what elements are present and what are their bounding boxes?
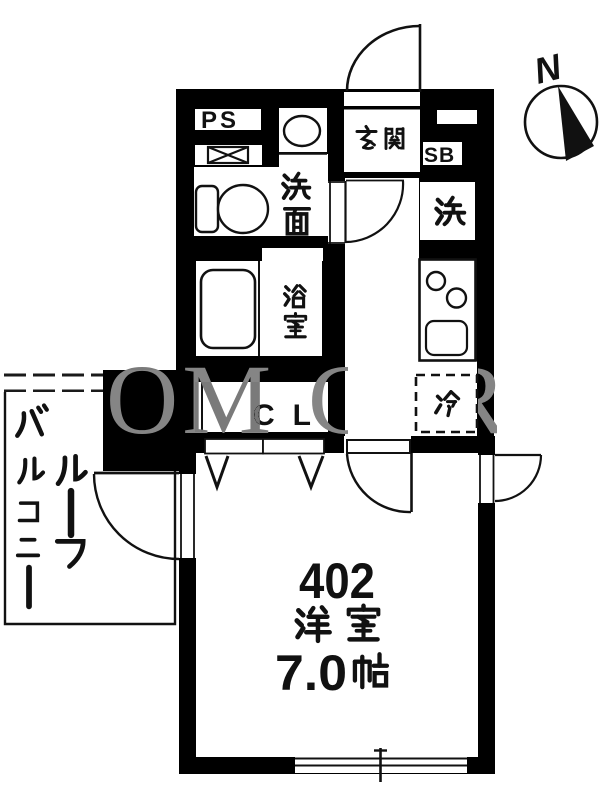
svg-text:7.0: 7.0 [275,645,347,701]
svg-text:SB: SB [424,144,455,167]
svg-text:OM: OM [106,344,275,455]
svg-text:402: 402 [299,553,375,609]
svg-text:PS: PS [201,107,239,134]
